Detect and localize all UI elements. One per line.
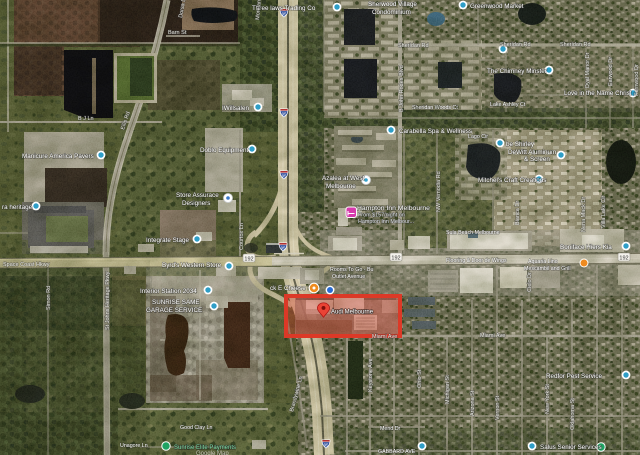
svg-text:Hampton Inn Melbour...: Hampton Inn Melbour... [358,219,414,225]
svg-text:Dyal Manor Dr: Dyal Manor Dr [585,52,591,88]
svg-text:& Screen: & Screen [524,156,550,163]
svg-text:From $157/night on: From $157/night on [358,213,405,219]
svg-text:Greenwood Market: Greenwood Market [470,3,524,10]
svg-text:Interior Station 2034: Interior Station 2034 [140,288,197,295]
svg-text:Miami Ave: Miami Ave [372,334,397,340]
svg-text:Condominium: Condominium [372,9,411,16]
svg-text:95: 95 [282,12,287,17]
svg-text:Manicure America Pavers: Manicure America Pavers [22,153,94,160]
svg-text:The Chimney Minster: The Chimney Minster [487,68,547,75]
svg-text:Cielo Dr: Cielo Dr [527,272,533,292]
svg-text:Michigan St: Michigan St [445,375,451,404]
svg-text:NW Vemodia Rd: NW Vemodia Rd [436,171,442,212]
svg-text:Villa Lake Cir: Villa Lake Cir [601,196,607,228]
svg-text:Designers: Designers [182,200,210,207]
svg-text:B John Rodes Blvd: B John Rodes Blvd [399,65,405,112]
svg-text:Audi Melbourne: Audi Melbourne [331,310,374,316]
svg-text:Bianca Dr: Bianca Dr [515,201,521,225]
svg-text:Unagore Ln: Unagore Ln [120,443,148,449]
svg-text:ck E Cheese: ck E Cheese [270,285,306,292]
svg-text:DeWitt Aluminum: DeWitt Aluminum [508,149,556,156]
svg-text:Sheridan Rd: Sheridan Rd [500,42,531,48]
svg-text:Azalea at West: Azalea at West [322,175,364,182]
svg-text:Space Coast Hkwy: Space Coast Hkwy [3,262,50,268]
svg-text:Arizona St: Arizona St [470,390,476,416]
svg-text:Integrate Stage: Integrate Stage [146,237,190,244]
svg-text:Hampton Inn Melbourne: Hampton Inn Melbourne [357,205,430,212]
svg-text:Vernon St: Vernon St [495,395,501,420]
svg-text:ra heritage: ra heritage [2,204,33,211]
svg-text:Mend Dr: Mend Dr [380,426,401,432]
svg-text:Flooring & Door de Wings: Flooring & Door de Wings [446,258,507,264]
svg-text:Sheridan Woods Ct: Sheridan Woods Ct [412,105,458,111]
svg-text:Doblo Equipment: Doblo Equipment [200,147,249,154]
svg-text:Fernwood Dr: Fernwood Dr [634,64,640,96]
svg-text:Sheridan Rd: Sheridan Rd [398,43,429,49]
svg-text:Simon Rd: Simon Rd [46,286,52,310]
svg-text:Courtox Ln: Courtox Ln [239,223,245,250]
svg-text:Rooms To Go - Bu: Rooms To Go - Bu [330,267,374,273]
svg-text:Mescambil and Grill: Mescambil and Grill [524,266,571,272]
svg-text:Salus Senior Services: Salus Senior Services [540,444,602,451]
svg-text:St Johns Heritage Pkwy: St Johns Heritage Pkwy [105,271,111,330]
svg-text:Melbourne: Melbourne [326,183,356,190]
svg-text:192: 192 [244,256,253,262]
svg-text:Mitchel's Craft Creations: Mitchel's Craft Creations [478,177,546,184]
svg-text:Redfor Pest Service: Redfor Pest Service [546,373,602,380]
svg-text:Sherwood Village: Sherwood Village [368,1,417,8]
svg-text:Outlet Avenue: Outlet Avenue [332,274,365,280]
svg-text:Keystone Ave: Keystone Ave [368,358,374,392]
svg-text:Miami Ave: Miami Ave [480,333,505,339]
svg-text:Lake Ashley Ct: Lake Ashley Ct [490,102,526,108]
svg-text:Store Assurace: Store Assurace [176,192,219,199]
svg-text:Byrd's Western Store: Byrd's Western Store [162,262,222,269]
svg-text:Aquaria Lino: Aquaria Lino [528,259,558,265]
svg-text:GABBARD AVE: GABBARD AVE [378,449,416,455]
svg-text:Sheridan Rd: Sheridan Rd [560,42,591,48]
svg-text:B J Ln: B J Ln [78,116,94,122]
svg-text:SUNRISE SAME: SUNRISE SAME [152,299,200,306]
svg-text:Google Map: Google Map [196,451,229,455]
svg-text:Barn St: Barn St [168,30,187,36]
svg-text:Good Clay Ln: Good Clay Ln [180,425,212,431]
svg-text:Lago Cir: Lago Cir [468,134,488,140]
svg-text:Nena Mack Dr: Nena Mack Dr [581,197,587,232]
svg-text:Love in the Name Christ: Love in the Name Christ [564,90,632,97]
svg-text:Carabella Spa & Wellness: Carabella Spa & Wellness [399,128,472,135]
svg-text:Boniface Hiers Kia: Boniface Hiers Kia [560,244,612,251]
svg-text:Earwood Dr: Earwood Dr [608,57,614,86]
svg-text:be Shirley: be Shirley [506,141,535,148]
svg-text:New York St: New York St [545,384,551,414]
svg-text:Ohio St: Ohio St [417,369,423,388]
svg-text:IWillsalen: IWillsalen [222,105,249,112]
svg-text:GARAGE SERVICE: GARAGE SERVICE [146,307,202,314]
svg-text:192: 192 [619,255,628,261]
svg-text:Oklahoma St: Oklahoma St [570,398,576,430]
svg-text:192: 192 [391,255,400,261]
svg-text:Sula Beach Melbourne: Sula Beach Melbourne [446,230,500,236]
